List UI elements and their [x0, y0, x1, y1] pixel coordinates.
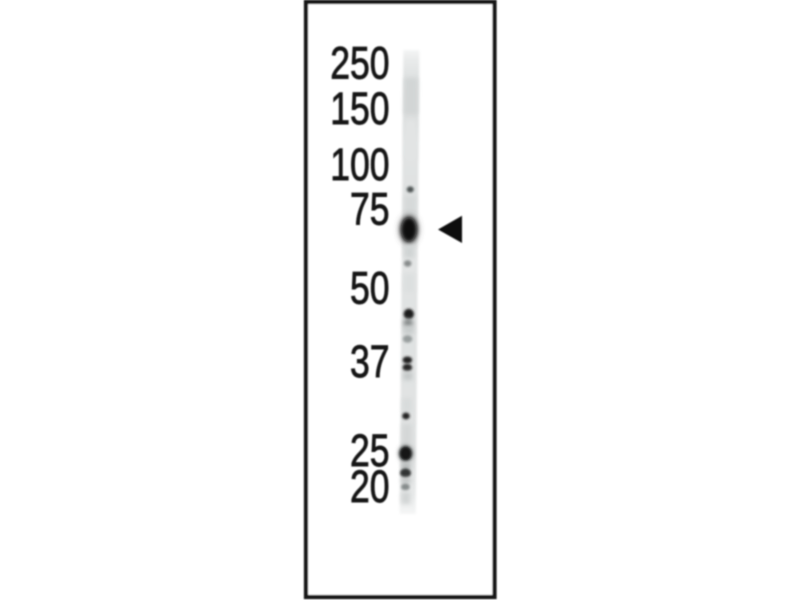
svg-text:150: 150	[330, 83, 389, 134]
svg-text:50: 50	[350, 262, 390, 313]
svg-text:250: 250	[330, 38, 389, 89]
svg-text:75: 75	[350, 183, 390, 234]
svg-text:37: 37	[350, 336, 390, 387]
svg-text:100: 100	[330, 139, 389, 190]
svg-text:20: 20	[350, 461, 390, 512]
